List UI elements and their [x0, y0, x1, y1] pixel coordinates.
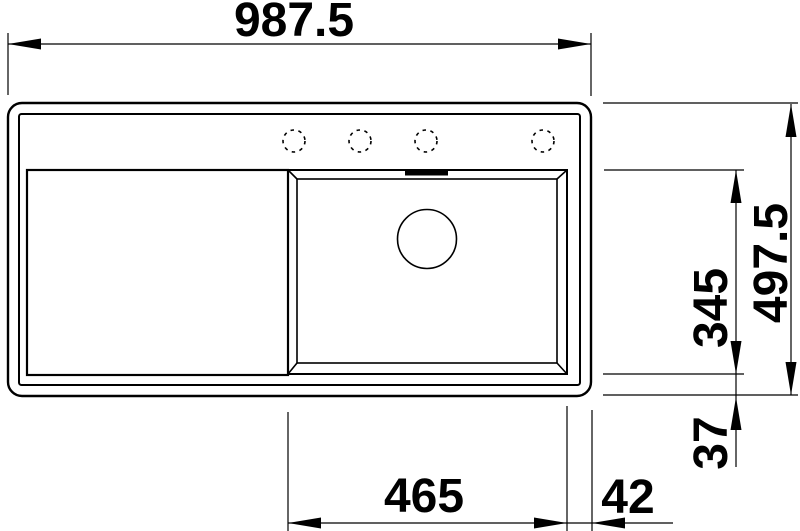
faucet-hole-2 — [349, 130, 371, 152]
dim-label-bowl-width: 465 — [384, 470, 464, 523]
drainboard — [27, 170, 288, 375]
arrowhead-left-icon — [8, 39, 41, 50]
dim-label-overall-depth: 497.5 — [745, 203, 798, 323]
bowl-chamfer-bottom-right — [557, 363, 567, 374]
faucet-hole-4 — [532, 130, 554, 152]
bowl-inner-wall — [297, 179, 557, 363]
arrowhead-right-icon — [558, 39, 591, 50]
dim-label-bowl-bottom-offset: 37 — [685, 416, 738, 469]
bowl-outer-rim — [288, 170, 567, 374]
sink-drawing: 987.5 497.5 345 37 465 42 — [0, 0, 800, 531]
bowl-chamfer-top-left — [288, 170, 297, 179]
faucet-hole-3 — [415, 130, 437, 152]
dim-label-bowl-depth: 345 — [685, 268, 738, 348]
overflow-slot — [405, 170, 448, 176]
dim-bowl-bottom-offset: 37 — [685, 397, 742, 470]
arrowhead-right-icon — [534, 518, 567, 529]
technical-drawing-canvas: 987.5 497.5 345 37 465 42 — [0, 0, 800, 531]
drain-circle — [398, 210, 457, 269]
arrowhead-up-icon — [786, 104, 797, 137]
arrowhead-down-icon — [786, 362, 797, 395]
arrowhead-left-icon — [288, 518, 321, 529]
bowl-chamfer-top-right — [557, 170, 567, 179]
arrowhead-up-icon — [731, 170, 742, 203]
sink-rim-outline — [19, 114, 580, 385]
dim-overall-width: 987.5 — [8, 0, 591, 96]
faucet-hole-1 — [283, 130, 305, 152]
sink-outer-outline — [8, 103, 591, 396]
bowl-chamfer-bottom-left — [288, 363, 297, 374]
dim-bowl-right-offset: 42 — [592, 410, 655, 531]
sink-body-group — [8, 103, 591, 396]
dim-label-overall-width: 987.5 — [234, 0, 354, 47]
dim-overall-depth: 497.5 — [603, 103, 798, 395]
dim-label-bowl-right-offset: 42 — [601, 471, 654, 524]
